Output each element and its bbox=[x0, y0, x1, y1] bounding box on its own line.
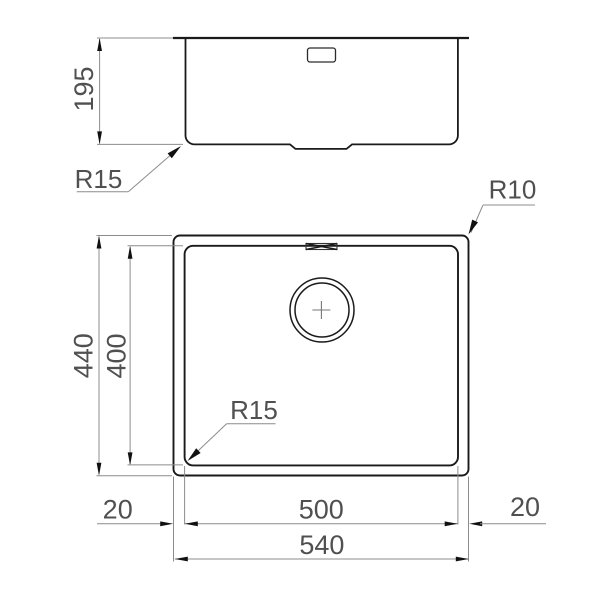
svg-text:20: 20 bbox=[103, 494, 133, 524]
svg-text:20: 20 bbox=[510, 492, 540, 522]
svg-text:540: 540 bbox=[299, 530, 344, 560]
svg-text:R15: R15 bbox=[75, 164, 123, 194]
svg-text:195: 195 bbox=[69, 66, 99, 111]
svg-text:R10: R10 bbox=[489, 175, 537, 205]
svg-text:500: 500 bbox=[299, 495, 344, 525]
svg-text:400: 400 bbox=[102, 333, 132, 378]
svg-text:R15: R15 bbox=[230, 395, 278, 425]
svg-text:440: 440 bbox=[69, 333, 99, 378]
